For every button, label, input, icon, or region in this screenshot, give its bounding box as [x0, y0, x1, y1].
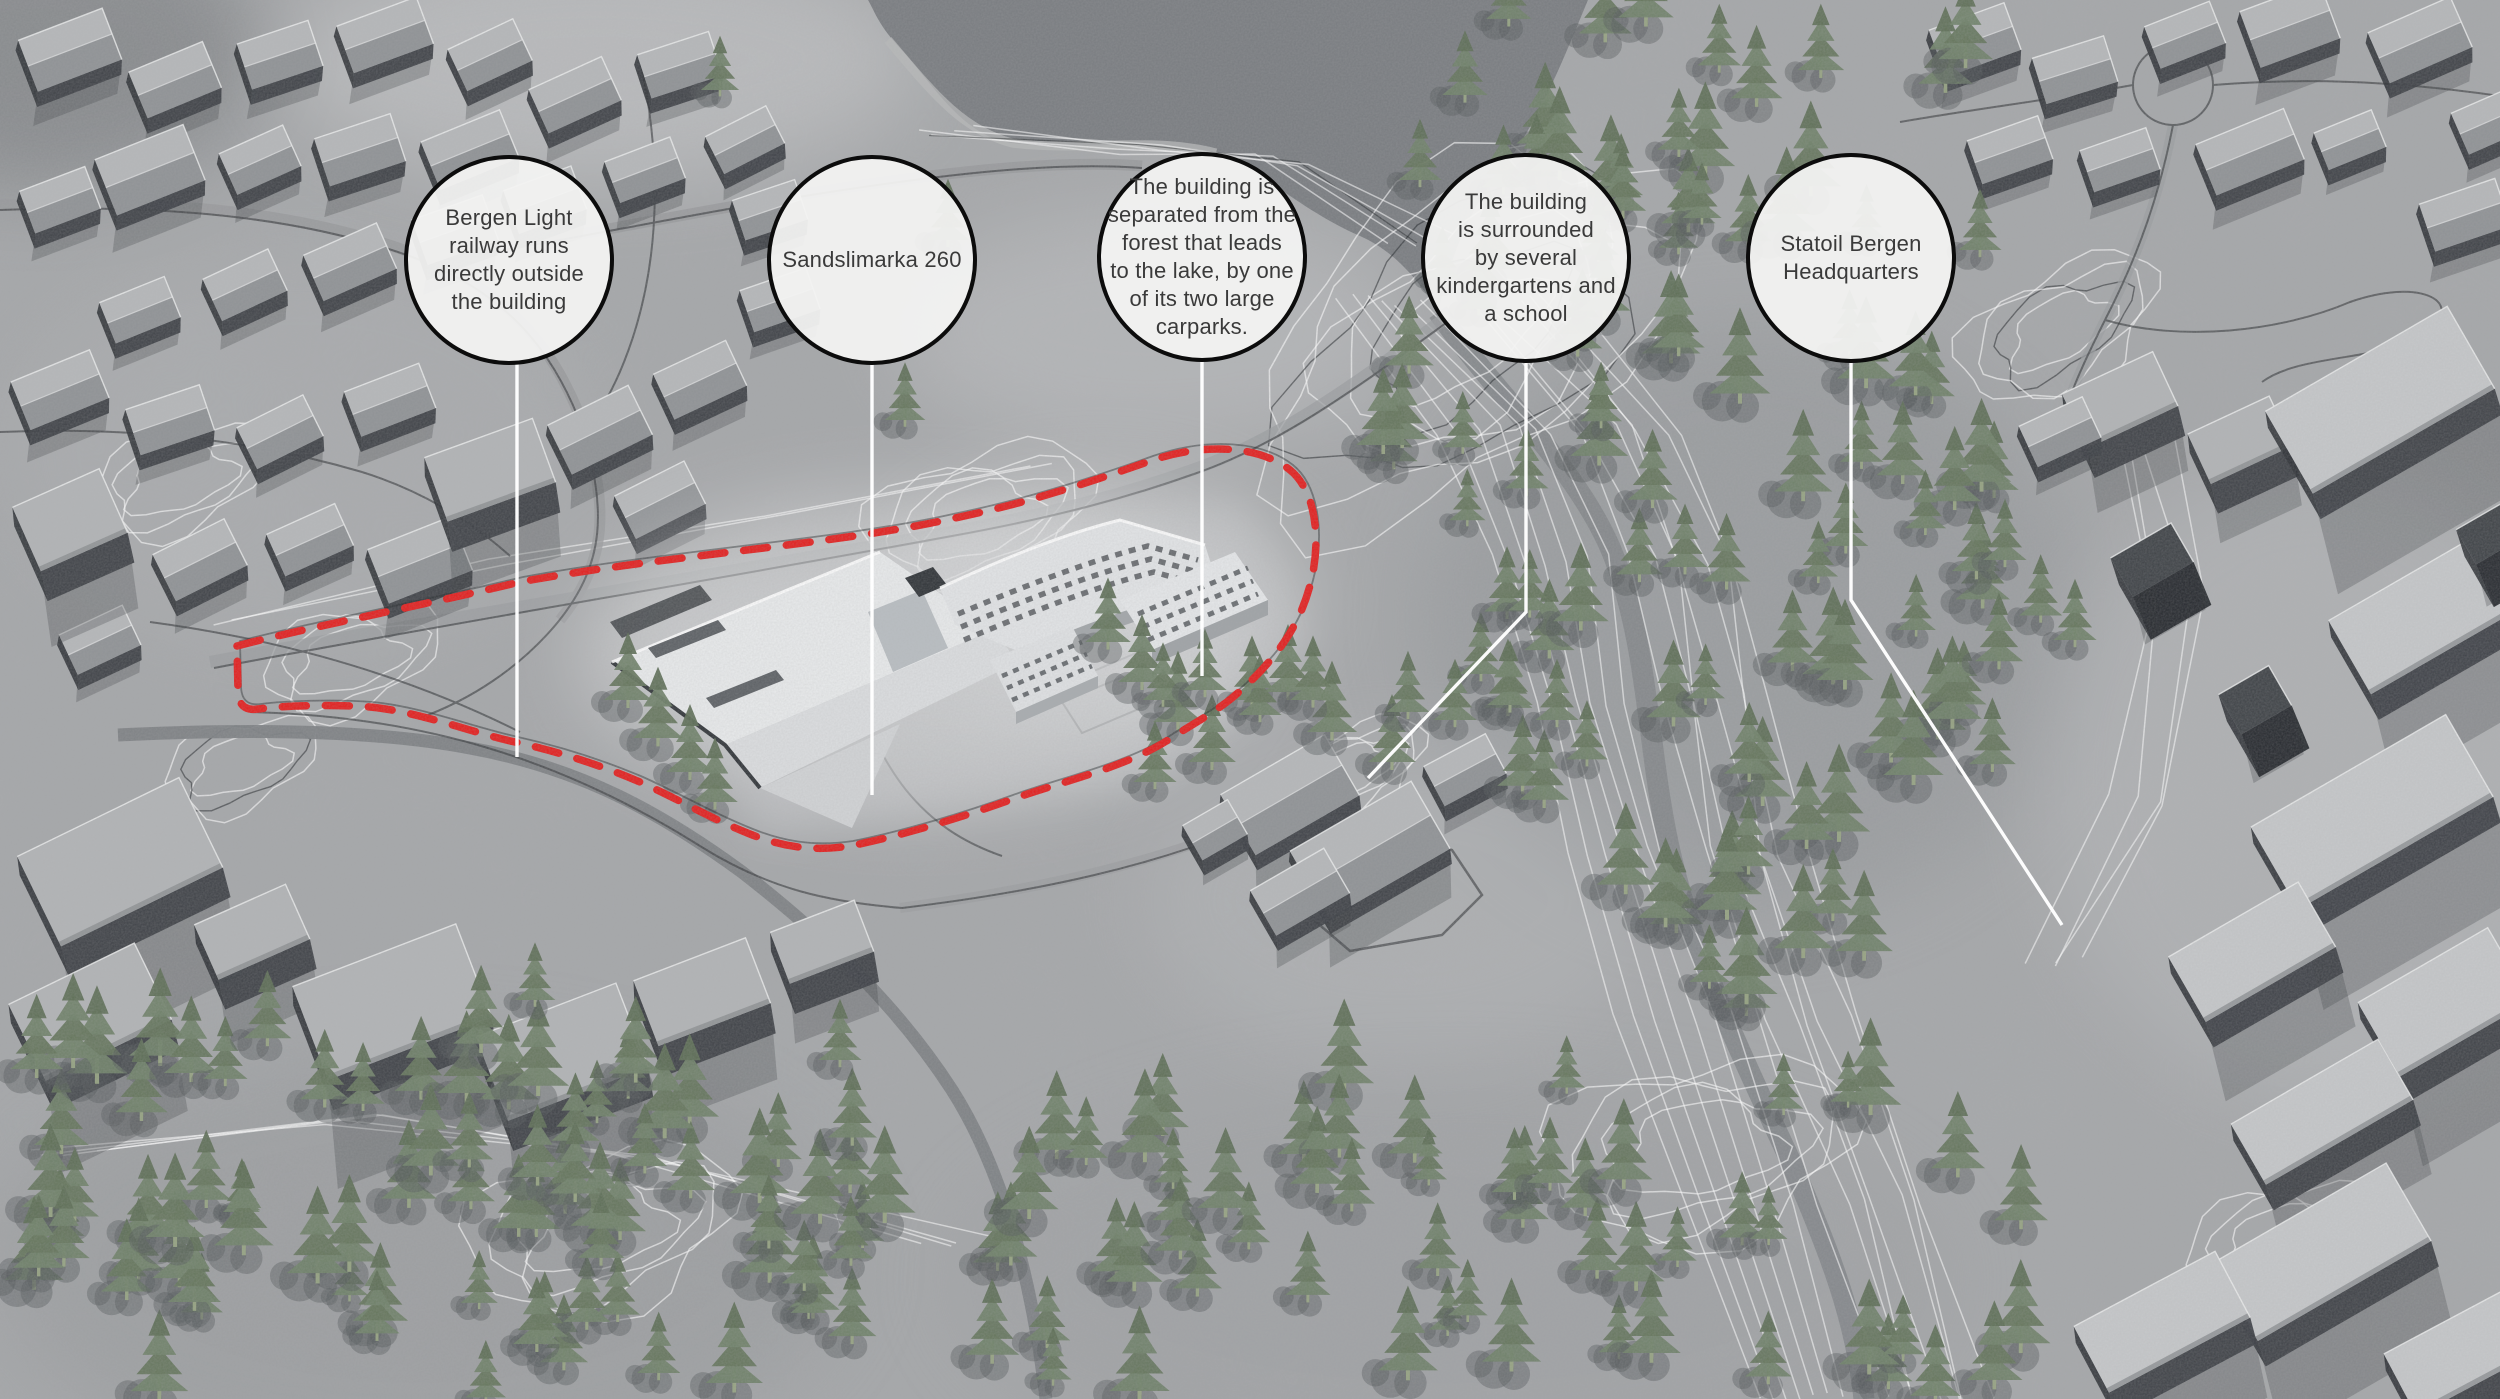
callout-text: Statoil Bergen Headquarters — [1781, 230, 1922, 286]
callout-sandslimarka-260: Sandslimarka 260 — [767, 155, 977, 365]
callout-text: The building is separated from the fores… — [1108, 173, 1296, 341]
callout-text: Bergen Light railway runs directly outsi… — [434, 204, 584, 316]
callout-statoil-headquarters: Statoil Bergen Headquarters — [1746, 153, 1956, 363]
callout-kindergartens-school: The building is surrounded by several ki… — [1421, 153, 1631, 363]
site-analysis-map: Bergen Light railway runs directly outsi… — [0, 0, 2500, 1399]
callout-text: The building is surrounded by several ki… — [1436, 188, 1616, 328]
callout-bergen-light-railway: Bergen Light railway runs directly outsi… — [404, 155, 614, 365]
callout-text: Sandslimarka 260 — [782, 246, 961, 274]
callout-carpark-separation: The building is separated from the fores… — [1097, 152, 1307, 362]
